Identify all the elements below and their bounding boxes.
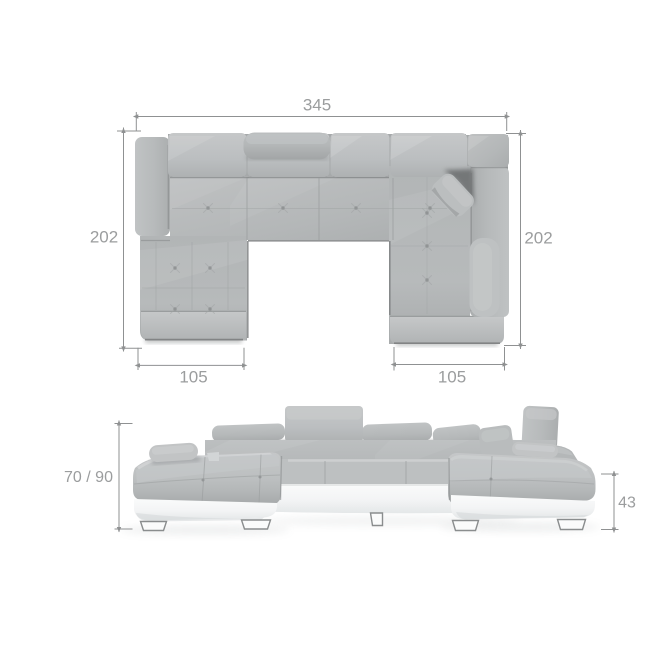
svg-text:43: 43 <box>618 495 636 512</box>
svg-text:105: 105 <box>179 368 207 387</box>
svg-text:70 / 90: 70 / 90 <box>64 469 113 486</box>
svg-text:105: 105 <box>438 368 466 387</box>
svg-text:202: 202 <box>90 228 118 247</box>
svg-text:345: 345 <box>303 96 331 115</box>
svg-text:202: 202 <box>524 229 552 248</box>
